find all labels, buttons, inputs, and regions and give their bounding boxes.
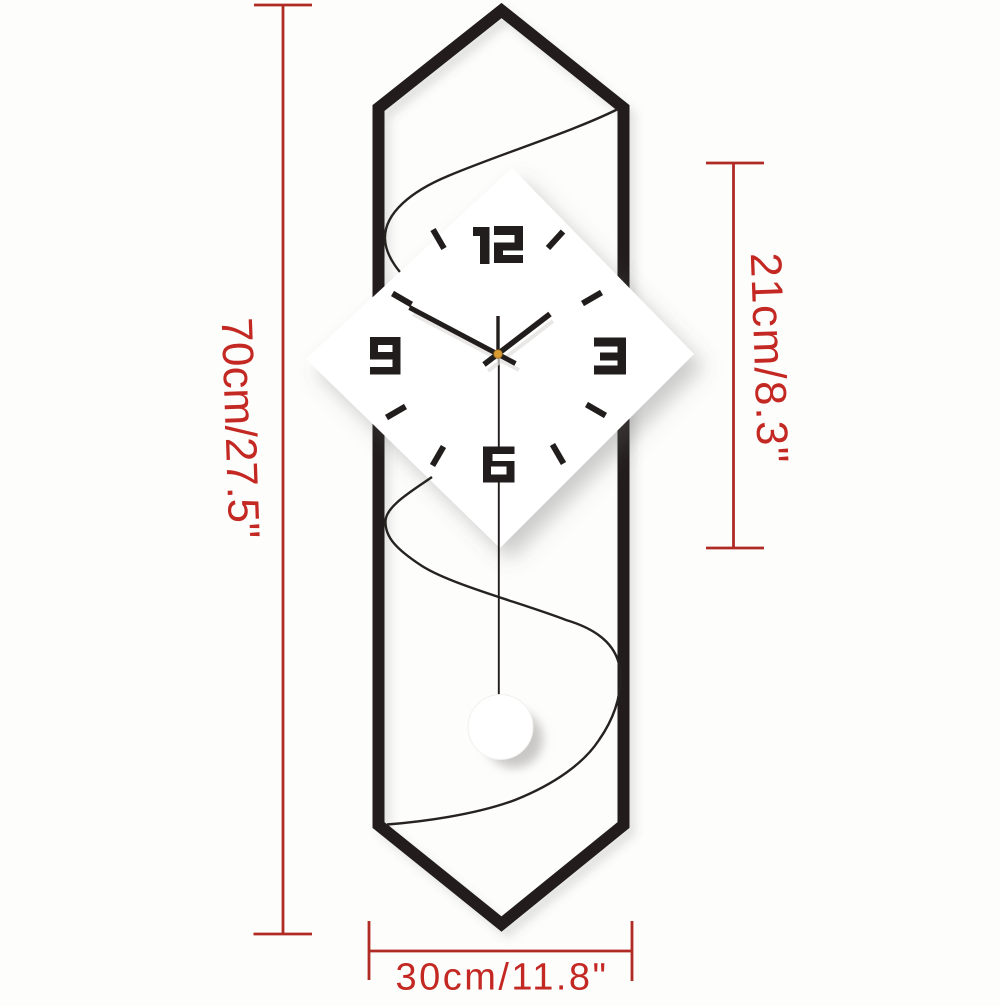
svg-text:70cm/27.5": 70cm/27.5" bbox=[212, 317, 269, 540]
svg-text:30cm/11.8": 30cm/11.8" bbox=[395, 957, 608, 999]
svg-text:21cm/8.3": 21cm/8.3" bbox=[741, 252, 797, 465]
